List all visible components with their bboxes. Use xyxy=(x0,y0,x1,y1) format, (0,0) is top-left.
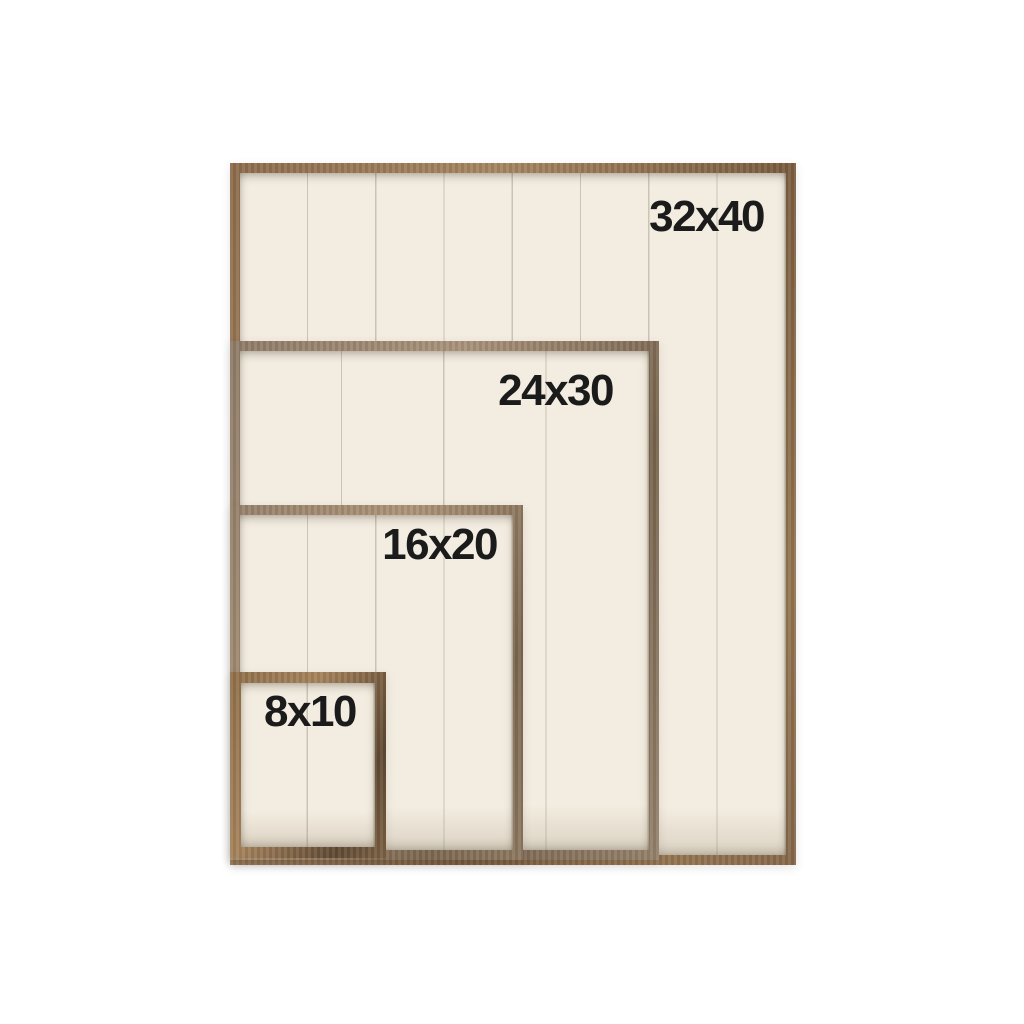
size-label-8x10: 8x10 xyxy=(264,690,356,734)
size-label-16x20: 16x20 xyxy=(382,523,497,567)
size-label-32x40: 32x40 xyxy=(649,195,764,239)
size-label-24x30: 24x30 xyxy=(498,369,613,413)
size-comparison-image: 32x40 24x30 16x20 8x10 xyxy=(0,0,1024,1024)
sign-8x10: 8x10 xyxy=(230,672,386,858)
